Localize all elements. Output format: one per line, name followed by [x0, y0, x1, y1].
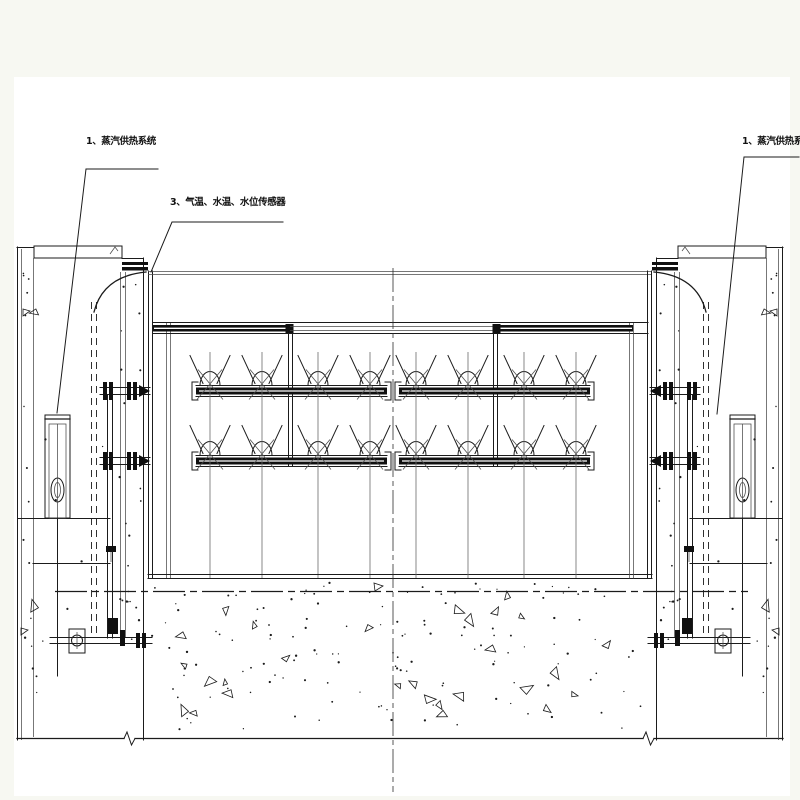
break-mark — [643, 732, 654, 745]
gate-heating-system-drawing — [0, 0, 800, 800]
callout-steam-supply-left: 1、蒸汽供热系统 — [86, 136, 156, 147]
callout-leaders — [57, 157, 799, 414]
steam-tank — [45, 415, 70, 676]
steam-tank — [730, 415, 755, 676]
heating-rows-right — [395, 324, 633, 578]
supply-bend-pipe — [654, 272, 706, 312]
pier-left — [17, 246, 171, 740]
callout-steam-supply-right: 1、蒸汽供热系统 — [742, 136, 800, 147]
pier-right — [630, 246, 784, 740]
concrete-floor-stipple — [151, 582, 641, 730]
break-mark — [124, 732, 135, 745]
drain-pipe-valve — [50, 618, 152, 653]
engineering-drawing-page: { "page": { "background": "#f7f8f2", "sh… — [0, 0, 800, 800]
drain-pipe-valve — [648, 618, 750, 653]
heating-pipe-bars — [190, 352, 391, 578]
callout-sensors: 3、气温、水温、水位传感器 — [170, 197, 285, 208]
floor-line — [17, 583, 783, 745]
gate-frame — [148, 272, 652, 579]
heating-rows-left — [153, 324, 391, 578]
heating-pipe-bars — [395, 352, 596, 578]
supply-bend-pipe — [94, 272, 146, 312]
